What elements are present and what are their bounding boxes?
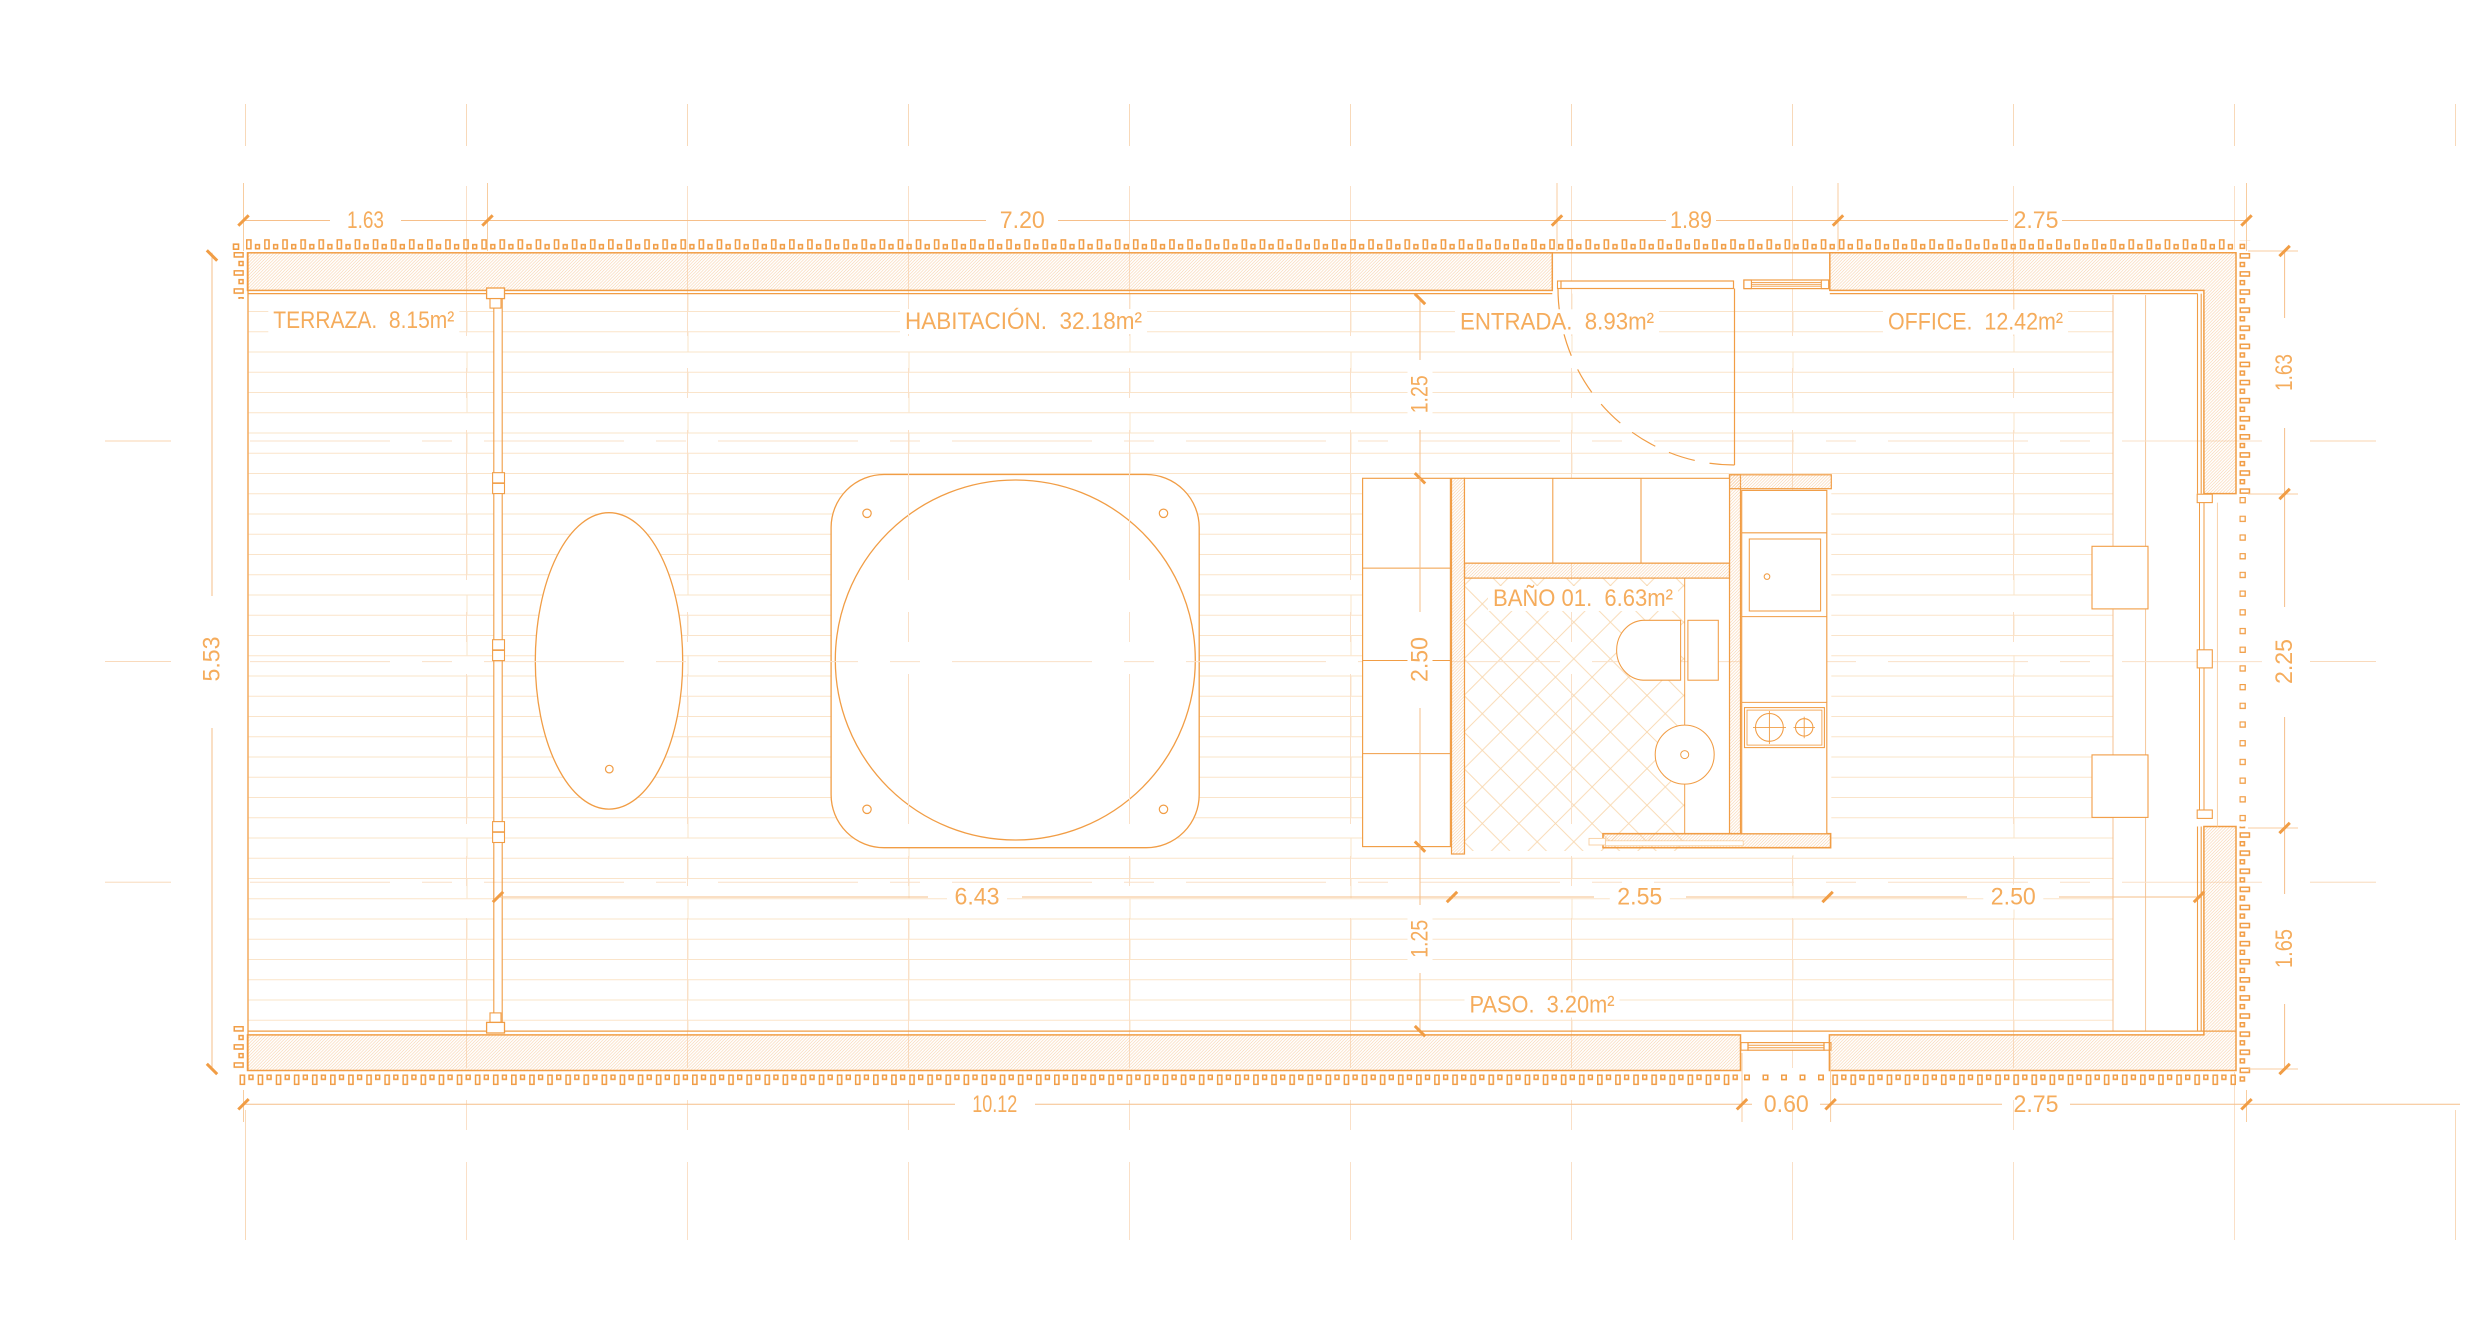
- svg-text:2.75: 2.75: [2014, 1091, 2059, 1118]
- svg-text:BAÑO 01. 6.63m²: BAÑO 01. 6.63m²: [1493, 585, 1673, 612]
- svg-text:HABITACIÓN. 32.18m²: HABITACIÓN. 32.18m²: [905, 308, 1142, 335]
- svg-text:1.63: 1.63: [347, 207, 384, 234]
- svg-text:ENTRADA. 8.93m²: ENTRADA. 8.93m²: [1460, 308, 1654, 335]
- svg-text:2.50: 2.50: [1407, 637, 1434, 682]
- svg-text:1.65: 1.65: [2271, 929, 2298, 968]
- svg-text:5.53: 5.53: [199, 637, 226, 682]
- svg-text:1.25: 1.25: [1407, 375, 1434, 413]
- svg-text:1.63: 1.63: [2271, 354, 2298, 391]
- svg-text:OFFICE. 12.42m²: OFFICE. 12.42m²: [1888, 309, 2063, 336]
- svg-text:1.25: 1.25: [1407, 920, 1434, 958]
- svg-text:2.55: 2.55: [1617, 884, 1662, 911]
- svg-text:2.25: 2.25: [2271, 639, 2298, 684]
- svg-text:10.12: 10.12: [972, 1091, 1017, 1118]
- svg-text:6.43: 6.43: [955, 884, 1000, 911]
- svg-text:2.50: 2.50: [1991, 884, 2036, 911]
- svg-text:1.89: 1.89: [1670, 207, 1712, 234]
- svg-text:2.75: 2.75: [2014, 207, 2059, 234]
- svg-text:0.60: 0.60: [1764, 1091, 1809, 1118]
- svg-text:7.20: 7.20: [1000, 207, 1045, 234]
- svg-text:PASO. 3.20m²: PASO. 3.20m²: [1470, 992, 1615, 1019]
- svg-text:TERRAZA. 8.15m²: TERRAZA. 8.15m²: [273, 307, 454, 334]
